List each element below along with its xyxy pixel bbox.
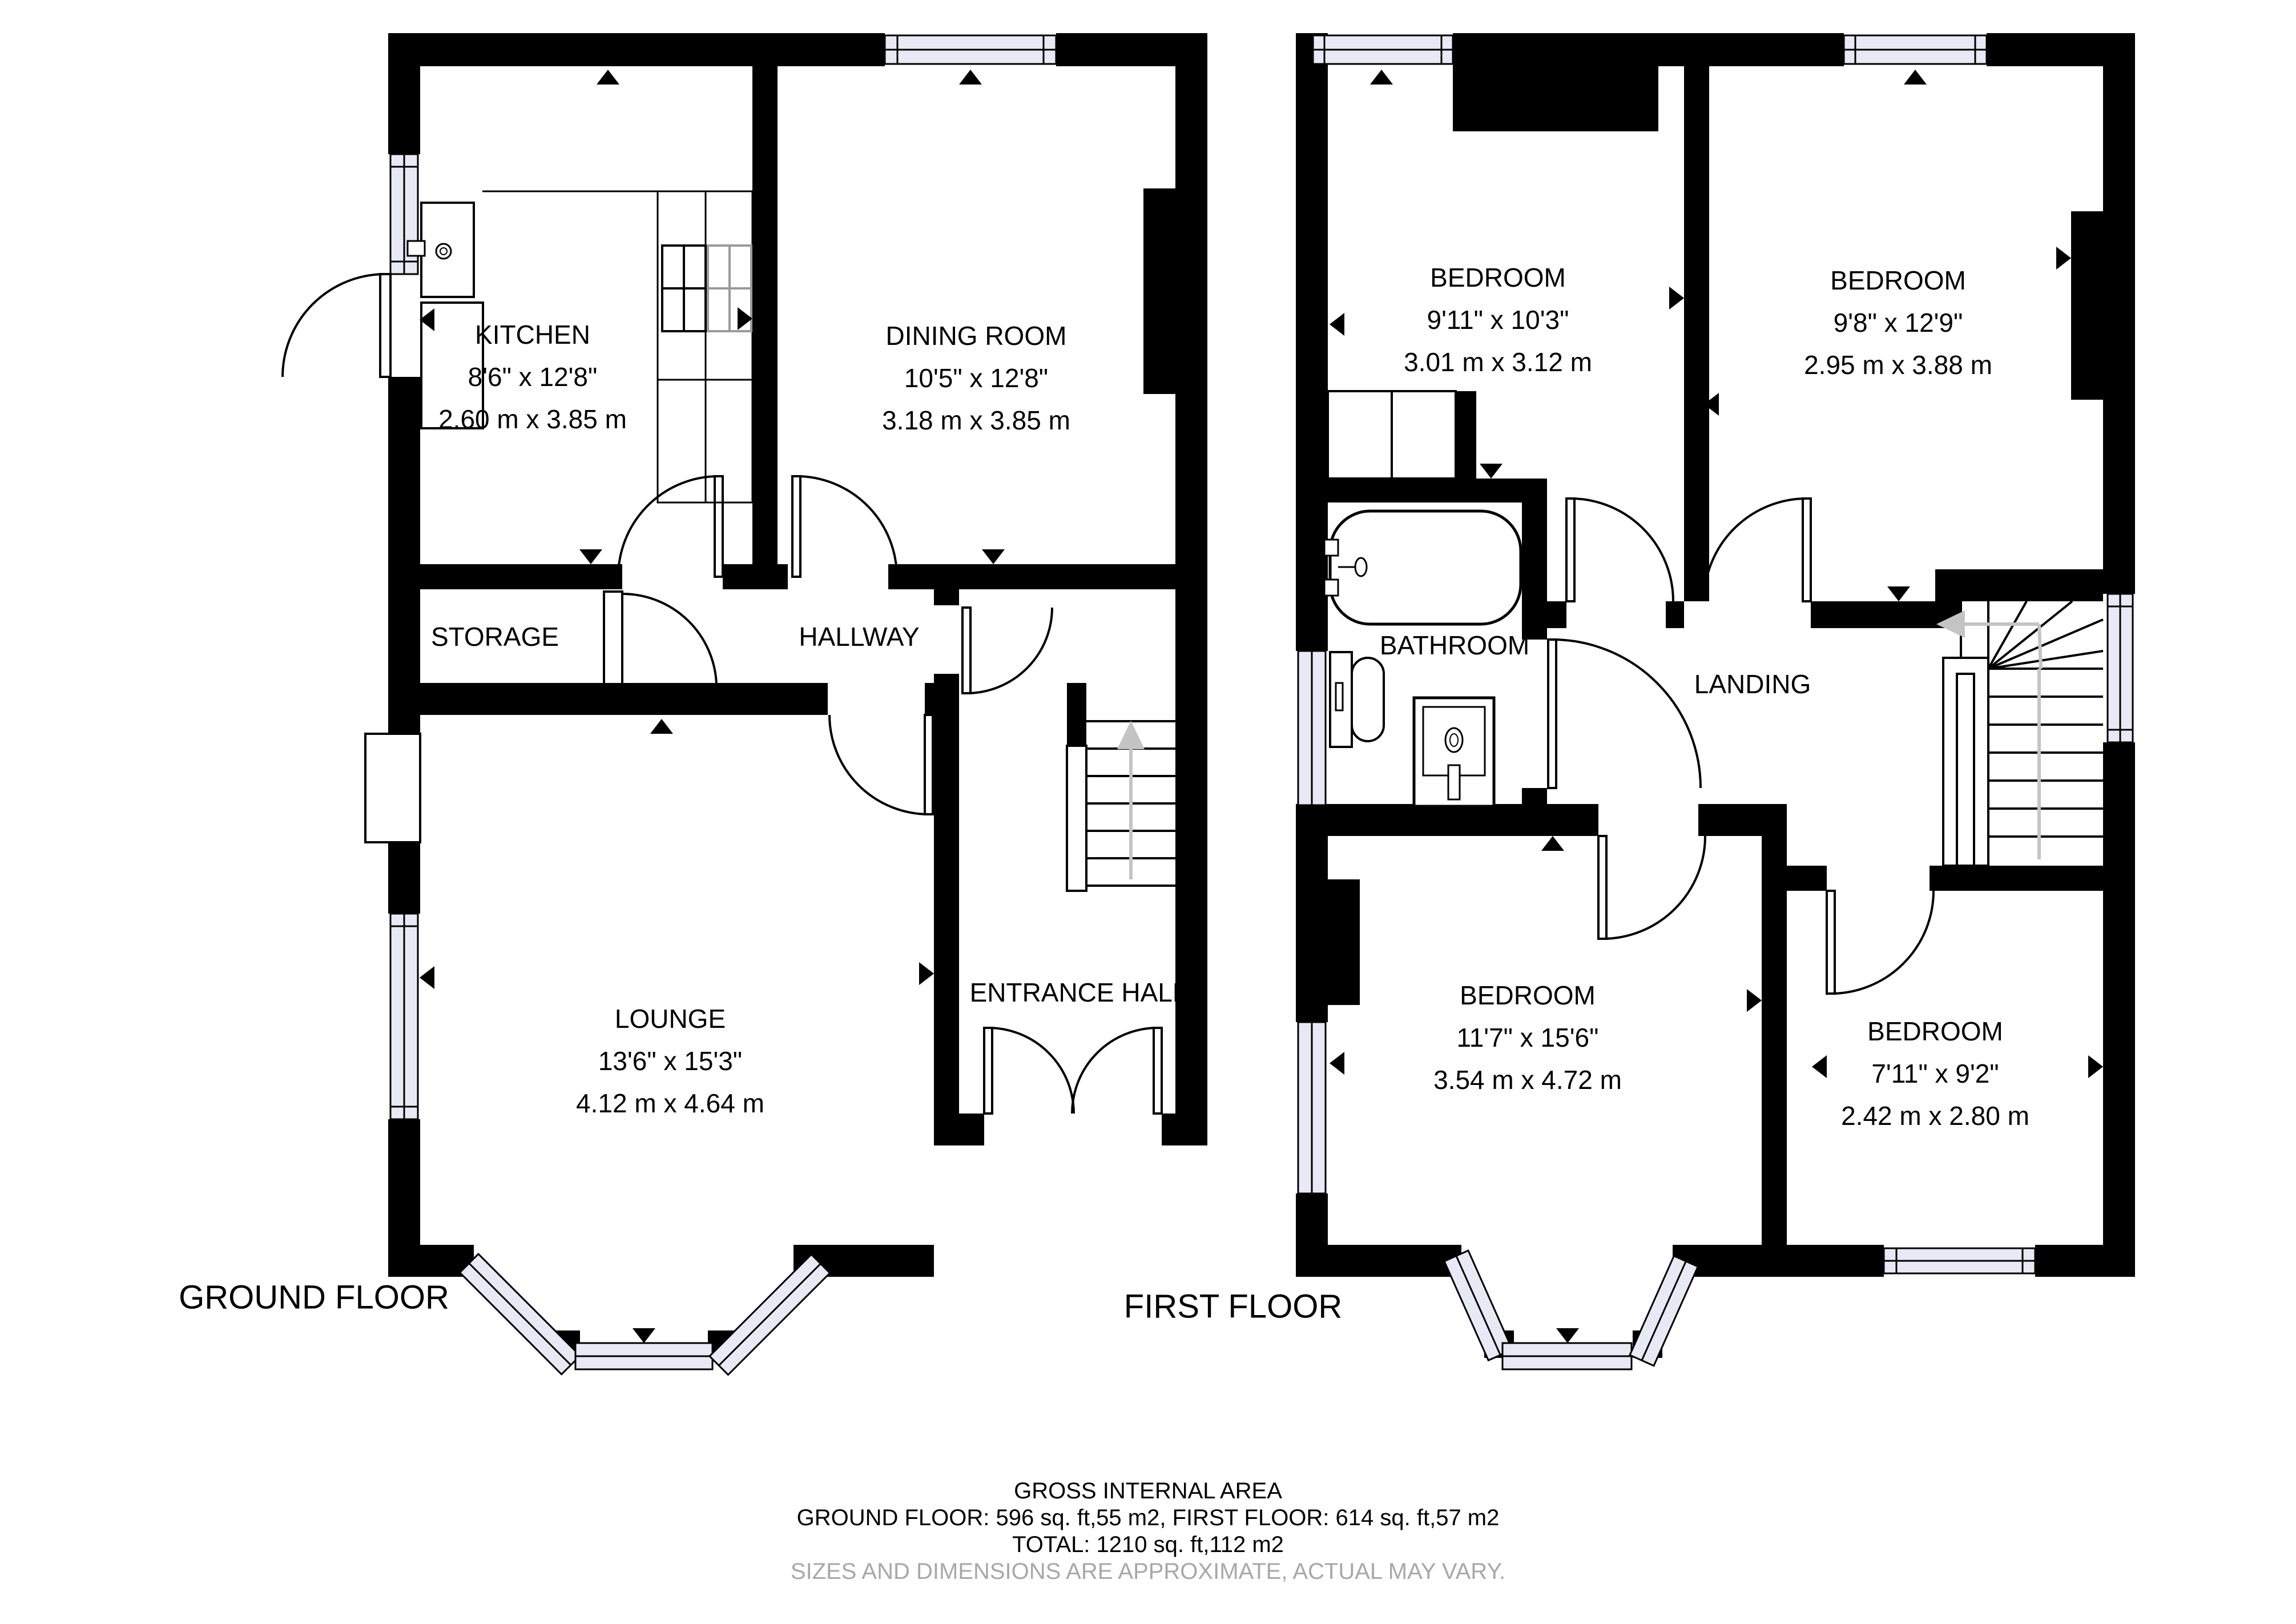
floorplan: KITCHEN 8'6" x 12'8" 2.60 m x 3.85 m DIN… <box>0 0 2296 1624</box>
bedroom3-bay-window-right <box>1630 1256 1698 1365</box>
bedroom2-window <box>1844 35 1987 64</box>
dining-room-door <box>792 476 897 577</box>
room-dims-metric: 4.12 m x 4.64 m <box>576 1082 764 1124</box>
first-floor-title: FIRST FLOOR <box>1124 1288 1342 1326</box>
room-dims-metric: 3.54 m x 4.72 m <box>1433 1059 1622 1101</box>
room-name: BEDROOM <box>1433 974 1622 1016</box>
bathtub-tap <box>1324 580 1338 596</box>
footer-total: TOTAL: 1210 sq. ft,112 m2 <box>791 1531 1505 1558</box>
lounge-door <box>829 715 933 814</box>
bathroom-label: BATHROOM <box>1380 624 1529 666</box>
dining-room-window <box>885 35 1056 64</box>
stair-wall-stub <box>1067 683 1086 746</box>
room-dims-imperial: 10'5" x 12'8" <box>882 357 1070 399</box>
room-dims-metric: 2.95 m x 3.88 m <box>1804 344 1992 386</box>
bathtub-handle <box>1355 558 1367 576</box>
room-dims-metric: 2.42 m x 2.80 m <box>1841 1095 2029 1137</box>
ff-doors <box>1548 499 1934 994</box>
landing-label: LANDING <box>1694 663 1811 705</box>
bedroom3-side-window <box>1298 1022 1326 1193</box>
gf-staircase <box>1067 683 1175 891</box>
kitchen-door <box>618 476 723 577</box>
front-double-door <box>984 1028 1162 1114</box>
ground-floor-plan <box>283 33 1207 1375</box>
ff-stair-banister-inner <box>1957 674 1974 866</box>
room-dims-imperial: 8'6" x 12'8" <box>438 356 627 398</box>
room-name: HALLWAY <box>799 616 919 658</box>
bathtub-tap <box>1324 540 1338 556</box>
footer-disclaimer: SIZES AND DIMENSIONS ARE APPROXIMATE, AC… <box>791 1558 1505 1585</box>
stair-banister <box>1067 746 1086 891</box>
bedroom4-label: BEDROOM 7'11" x 9'2" 2.42 m x 2.80 m <box>1841 1010 2029 1137</box>
room-name: ENTRANCE HALL <box>970 971 1187 1014</box>
storage-door <box>604 592 716 684</box>
bedroom2-label: BEDROOM 9'8" x 12'9" 2.95 m x 3.88 m <box>1804 259 1992 386</box>
room-dims-metric: 2.60 m x 3.85 m <box>438 398 627 440</box>
toilet <box>1330 652 1384 747</box>
ff-cupboard <box>1328 391 1456 479</box>
bedroom1-door <box>1566 499 1673 601</box>
kitchen-sink-drain <box>436 244 451 259</box>
bedroom1-window <box>1313 35 1453 64</box>
back-door <box>283 274 390 377</box>
lounge-label: LOUNGE 13'6" x 15'3" 4.12 m x 4.64 m <box>576 998 764 1124</box>
kitchen-label: KITCHEN 8'6" x 12'8" 2.60 m x 3.85 m <box>438 313 627 440</box>
room-dims-metric: 3.18 m x 3.85 m <box>882 399 1070 441</box>
hallway-door <box>962 608 1052 693</box>
bedroom4-door <box>1827 891 1934 994</box>
ff-chimney-breast-left <box>1328 879 1360 1005</box>
kitchen-sink-unit <box>421 203 474 297</box>
ff-chimney-breast-right <box>2071 211 2103 400</box>
bathroom-door <box>1548 640 1701 788</box>
stove-hob <box>662 246 706 331</box>
room-dims-metric: 3.01 m x 3.12 m <box>1404 341 1592 383</box>
bedroom4-window <box>1884 1248 2035 1273</box>
stair-up-arrow <box>1117 721 1145 749</box>
bathroom-window <box>1298 651 1326 805</box>
lounge-bay-window-left <box>460 1254 580 1374</box>
room-dims-imperial: 9'8" x 12'9" <box>1804 302 1992 344</box>
storage-label: STORAGE <box>431 616 559 658</box>
lounge-side-window <box>390 914 418 1119</box>
gf-wall-recess <box>365 734 420 842</box>
room-dims-imperial: 9'11" x 10'3" <box>1404 299 1592 341</box>
room-dims-imperial: 7'11" x 9'2" <box>1841 1052 2029 1095</box>
bathroom-sink <box>1414 698 1494 806</box>
bedroom3-label: BEDROOM 11'7" x 15'6" 3.54 m x 4.72 m <box>1433 974 1622 1101</box>
room-name: LANDING <box>1694 663 1811 705</box>
bedroom3-bay-window-bottom <box>1503 1343 1632 1369</box>
room-name: KITCHEN <box>438 313 627 356</box>
room-name: LOUNGE <box>576 998 764 1040</box>
kitchen-tap <box>408 241 425 256</box>
room-name: DINING ROOM <box>882 315 1070 357</box>
room-name: BATHROOM <box>1380 624 1529 666</box>
room-name: BEDROOM <box>1841 1010 2029 1052</box>
bedroom1-label: BEDROOM 9'11" x 10'3" 3.01 m x 3.12 m <box>1404 256 1592 383</box>
lounge-bay-window-bottom <box>575 1343 712 1369</box>
entrance-hall-label: ENTRANCE HALL <box>970 971 1187 1014</box>
hallway-label: HALLWAY <box>799 616 919 658</box>
room-name: STORAGE <box>431 616 559 658</box>
lounge-bay-window-right <box>710 1255 830 1375</box>
footer: GROSS INTERNAL AREA GROUND FLOOR: 596 sq… <box>791 1478 1505 1585</box>
footer-title: GROSS INTERNAL AREA <box>791 1478 1505 1505</box>
ff-staircase <box>1936 601 2103 866</box>
ground-floor-title: GROUND FLOOR <box>179 1279 449 1317</box>
dining-room-label: DINING ROOM 10'5" x 12'8" 3.18 m x 3.85 … <box>882 315 1070 441</box>
room-name: BEDROOM <box>1404 256 1592 299</box>
room-dims-imperial: 13'6" x 15'3" <box>576 1040 764 1082</box>
footer-areas: GROUND FLOOR: 596 sq. ft,55 m2, FIRST FL… <box>791 1505 1505 1531</box>
bedroom3-door <box>1598 836 1705 939</box>
ff-chimney-breast-top <box>1453 66 1658 131</box>
room-name: BEDROOM <box>1804 259 1992 302</box>
room-dims-imperial: 11'7" x 15'6" <box>1433 1016 1622 1059</box>
floorplan-drawing <box>0 0 2296 1624</box>
bedroom2-door <box>1704 499 1811 601</box>
stairwell-window <box>2108 594 2133 742</box>
